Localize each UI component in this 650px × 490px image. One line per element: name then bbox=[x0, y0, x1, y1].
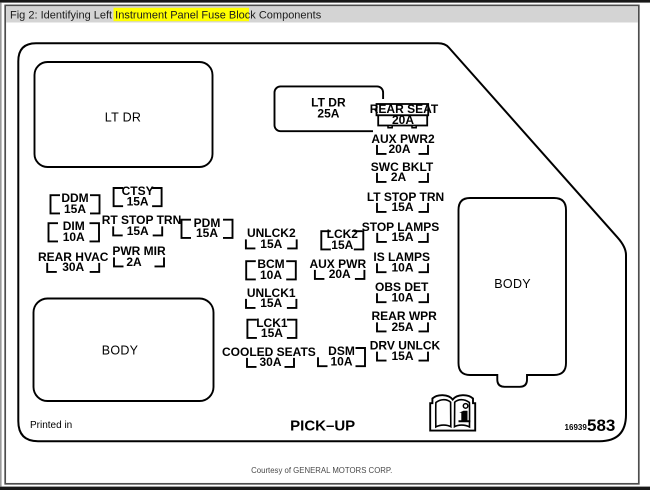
svg-text:15A: 15A bbox=[127, 224, 149, 238]
svg-text:30A: 30A bbox=[259, 355, 281, 369]
svg-text:15A: 15A bbox=[260, 237, 282, 251]
svg-text:15A: 15A bbox=[391, 349, 413, 363]
svg-text:25A: 25A bbox=[391, 320, 413, 334]
svg-text:15A: 15A bbox=[196, 226, 218, 240]
svg-text:Fig 2: Identifying Left Instru: Fig 2: Identifying Left Instrument Panel… bbox=[10, 9, 322, 21]
svg-text:20A: 20A bbox=[392, 113, 414, 127]
svg-text:2A: 2A bbox=[126, 255, 142, 269]
svg-text:15A: 15A bbox=[261, 326, 283, 340]
svg-text:10A: 10A bbox=[391, 261, 413, 275]
svg-text:10A: 10A bbox=[391, 291, 413, 305]
svg-text:BODY: BODY bbox=[494, 277, 531, 291]
svg-text:10A: 10A bbox=[330, 355, 352, 369]
svg-text:15A: 15A bbox=[260, 296, 282, 310]
svg-text:16939: 16939 bbox=[565, 423, 588, 432]
svg-text:25A: 25A bbox=[317, 107, 339, 121]
svg-text:2A: 2A bbox=[391, 170, 407, 184]
svg-text:10A: 10A bbox=[63, 230, 85, 244]
svg-text:Printed in: Printed in bbox=[30, 420, 72, 431]
svg-text:PICK–UP: PICK–UP bbox=[290, 418, 355, 435]
svg-text:10A: 10A bbox=[260, 268, 282, 282]
svg-text:BODY: BODY bbox=[102, 344, 139, 358]
svg-text:15A: 15A bbox=[331, 238, 353, 252]
svg-text:583: 583 bbox=[587, 416, 615, 435]
svg-text:15A: 15A bbox=[391, 230, 413, 244]
svg-text:20A: 20A bbox=[329, 267, 351, 281]
svg-text:30A: 30A bbox=[62, 260, 84, 274]
svg-text:15A: 15A bbox=[127, 195, 149, 209]
svg-text:20A: 20A bbox=[388, 142, 410, 156]
svg-text:15A: 15A bbox=[64, 202, 86, 216]
svg-text:LT DR: LT DR bbox=[105, 111, 141, 125]
svg-text:15A: 15A bbox=[391, 200, 413, 214]
svg-text:Courtesy of GENERAL MOTORS COR: Courtesy of GENERAL MOTORS CORP. bbox=[251, 466, 392, 475]
